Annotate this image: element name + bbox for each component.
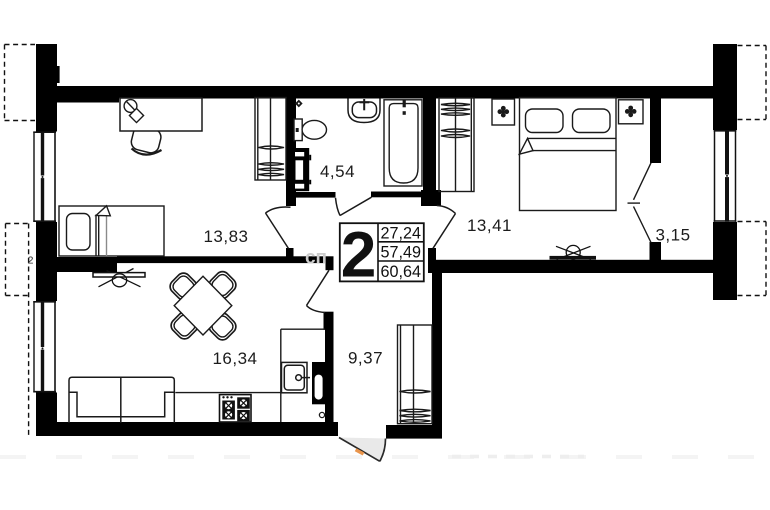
svg-text:2: 2 bbox=[341, 219, 377, 291]
svg-text:13,83: 13,83 bbox=[203, 227, 248, 246]
svg-text:4,54: 4,54 bbox=[320, 162, 355, 181]
svg-text:13,41: 13,41 bbox=[467, 216, 512, 235]
svg-text:сп: сп bbox=[305, 248, 327, 269]
svg-text:3,15: 3,15 bbox=[655, 226, 690, 245]
svg-text:16,34: 16,34 bbox=[212, 349, 257, 368]
svg-text:57,49: 57,49 bbox=[381, 244, 422, 262]
svg-text:2: 2 bbox=[28, 255, 34, 267]
svg-text:27,24: 27,24 bbox=[381, 224, 422, 242]
svg-text:60,64: 60,64 bbox=[381, 263, 422, 281]
svg-text:9,37: 9,37 bbox=[348, 349, 383, 368]
